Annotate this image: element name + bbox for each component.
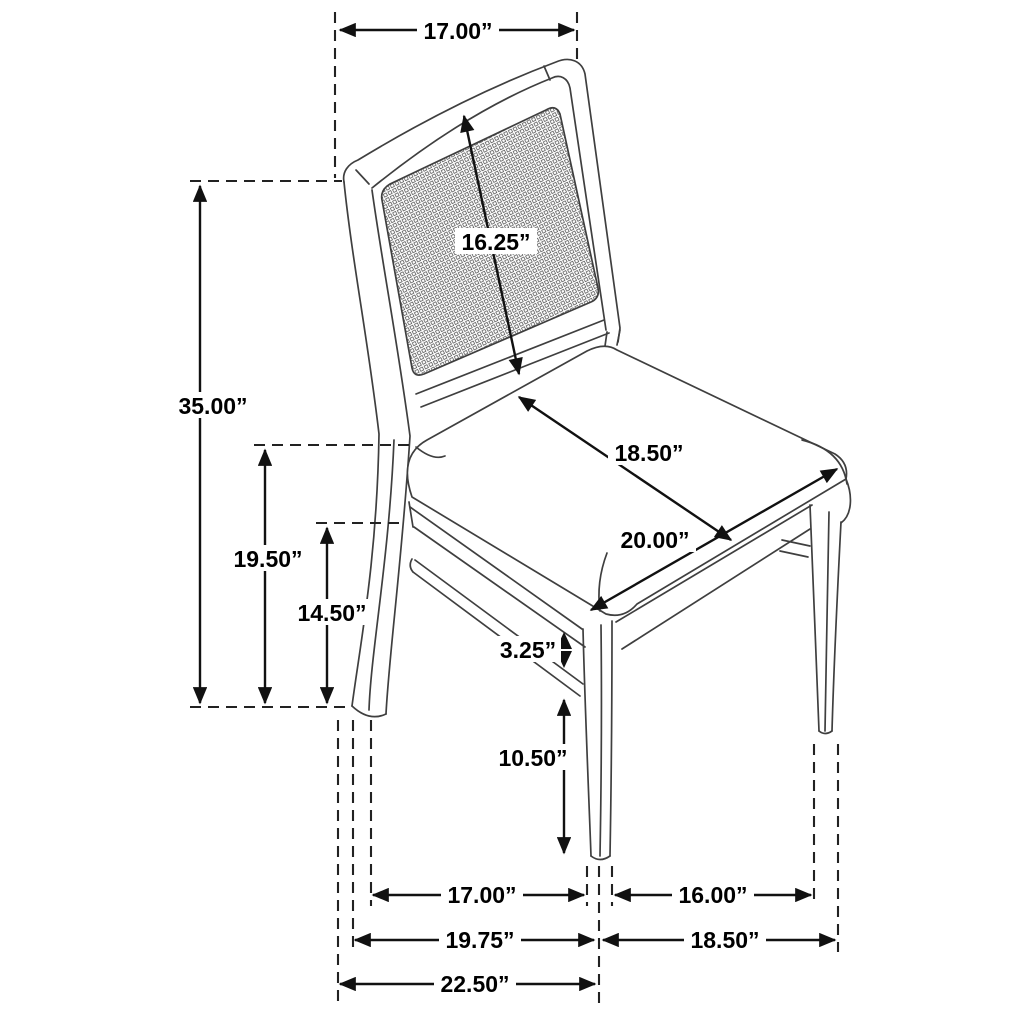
dim-label-base-front: 16.00” [672,881,754,908]
dim-label-apron-height: 14.50” [291,599,373,626]
chair-dimension-diagram: 17.00” 16.25” 35.00” 19.50” 14.50” 18.50… [0,0,1024,1024]
dim-label-apron-gap: 3.25” [495,636,561,663]
diagram-canvas: 17.00” 16.25” 35.00” 19.50” 14.50” 18.50… [0,0,1024,1024]
svg-text:22.50”: 22.50” [440,971,509,997]
dim-label-top-width: 17.00” [417,17,499,44]
dim-label-base-width-out: 18.50” [684,926,766,953]
svg-text:18.50”: 18.50” [690,927,759,953]
svg-text:3.25”: 3.25” [500,637,556,663]
dim-label-seat-height: 19.50” [227,545,309,572]
svg-text:10.50”: 10.50” [498,745,567,771]
svg-text:17.00”: 17.00” [423,18,492,44]
dim-label-seat-depth: 18.50” [608,439,690,466]
dim-label-base-depth-mid: 19.75” [439,926,521,953]
svg-text:19.75”: 19.75” [445,927,514,953]
dim-label-overall-height: 35.00” [172,392,254,419]
dim-label-base-side: 17.00” [441,881,523,908]
dim-label-seat-width: 20.00” [614,526,696,553]
svg-text:17.00”: 17.00” [447,882,516,908]
svg-text:20.00”: 20.00” [620,527,689,553]
svg-text:14.50”: 14.50” [297,600,366,626]
svg-text:19.50”: 19.50” [233,546,302,572]
dim-label-back-panel: 16.25” [455,228,537,255]
svg-text:16.25”: 16.25” [461,229,530,255]
svg-text:18.50”: 18.50” [614,440,683,466]
svg-text:35.00”: 35.00” [178,393,247,419]
dim-label-leg-clearance: 10.50” [492,744,574,771]
svg-text:16.00”: 16.00” [678,882,747,908]
dim-label-base-depth: 22.50” [434,970,516,997]
